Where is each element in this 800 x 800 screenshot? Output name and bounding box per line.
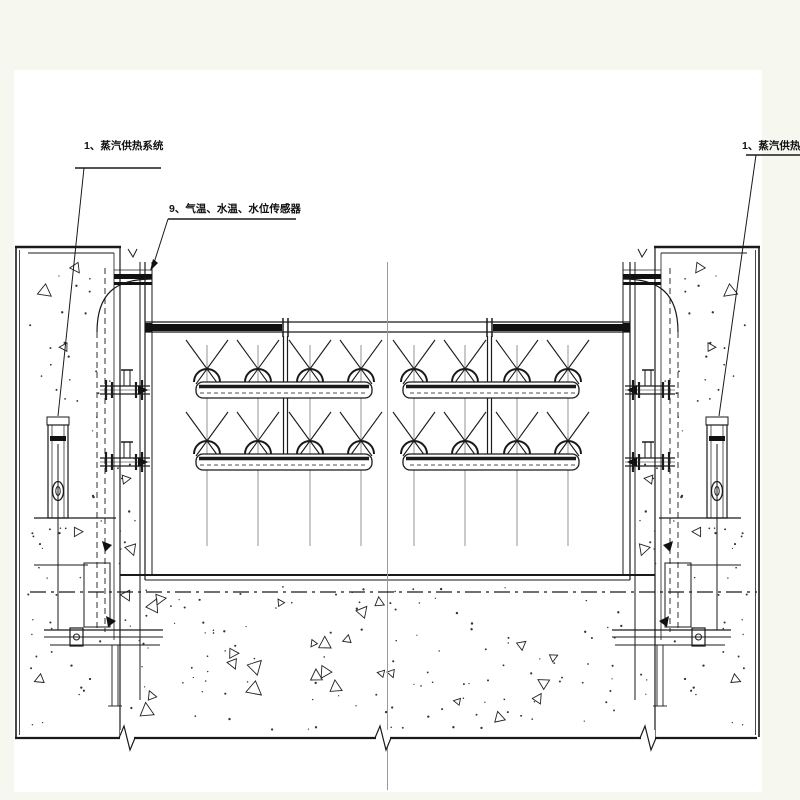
engineering-drawing-canvas: 1、蒸汽供热系统 9、气温、水温、水位传感器 1、蒸汽供热系统 bbox=[0, 0, 800, 800]
label-steam-system-left: 1、蒸汽供热系统 bbox=[84, 139, 164, 152]
label-sensors: 9、气温、水温、水位传感器 bbox=[169, 202, 301, 215]
label-steam-system-right: 1、蒸汽供热系统 bbox=[742, 139, 800, 152]
